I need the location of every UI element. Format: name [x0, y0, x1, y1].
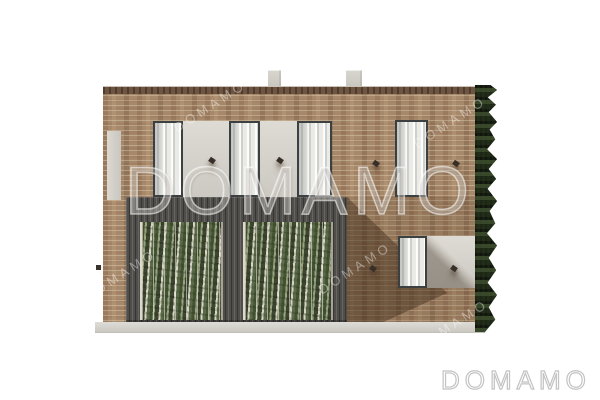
- green-wall-right: [243, 222, 333, 320]
- wall-fixture: [96, 265, 101, 270]
- parapet-coping: [103, 86, 480, 94]
- green-wall-left: [140, 222, 223, 320]
- chimney-right: [346, 70, 362, 87]
- watermark-large: DOMAMO: [118, 157, 482, 225]
- brand-logo: DOMAMO: [441, 367, 591, 393]
- render-canvas: DOMAMO DOMAMO DOMAMO DOMAMO DOMAMO DOMAM…: [0, 0, 600, 400]
- window-lower: [398, 236, 427, 288]
- concrete-panel-lower: [427, 236, 475, 288]
- chimney-left: [268, 70, 281, 87]
